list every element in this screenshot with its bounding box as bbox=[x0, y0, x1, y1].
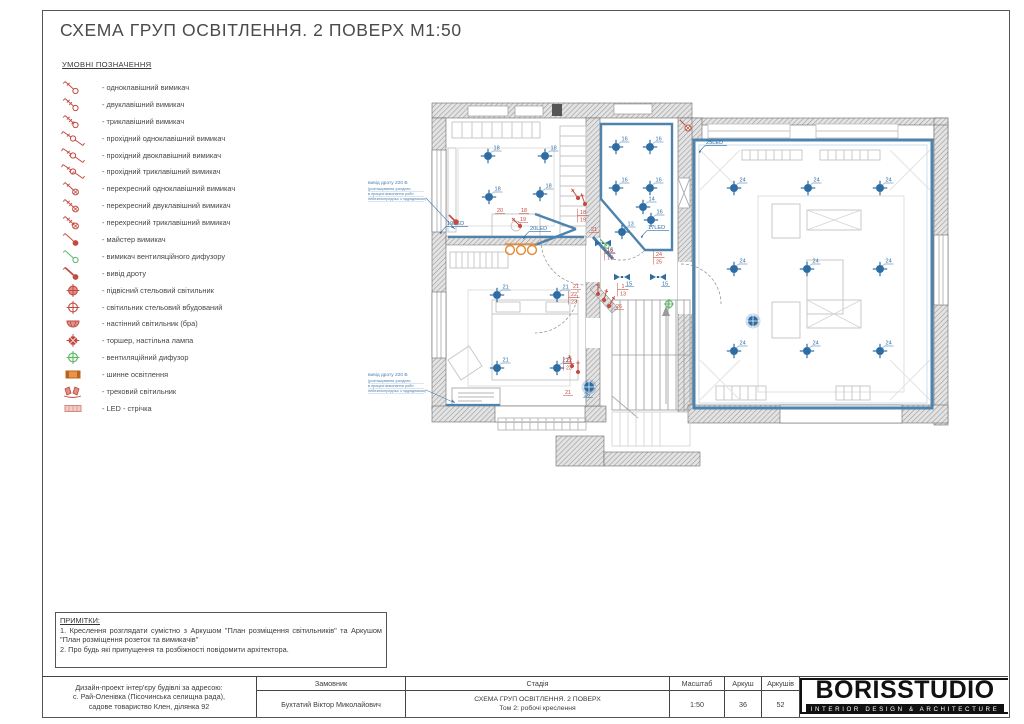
legend-item: - одноклавішний вимикач bbox=[58, 79, 358, 96]
svg-text:небезпосередньо з підрядником): небезпосередньо з підрядником) bbox=[368, 389, 427, 393]
legend-item: - вивід дроту bbox=[58, 265, 358, 282]
circuit-number-label: 20 bbox=[495, 208, 505, 214]
project-address: Дизайн-проект інтер'єру будівлі за адрес… bbox=[42, 677, 256, 717]
legend-item-label: - трековий світильник bbox=[88, 387, 176, 396]
ceiling-light: 18 bbox=[482, 187, 503, 205]
legend-item: - перехресний двуклавішний вимикач bbox=[58, 197, 358, 214]
svg-text:24: 24 bbox=[813, 341, 819, 347]
legend-item: - вентиляційний дифузор bbox=[58, 349, 358, 366]
svg-text:25LED: 25LED bbox=[706, 140, 723, 146]
stage-label: Стадія bbox=[406, 677, 669, 691]
svg-text:18: 18 bbox=[494, 146, 500, 152]
notes-box: ПРИМІТКИ: 1. Креслення розглядати суміст… bbox=[55, 612, 387, 668]
legend-item: - вимикач вентиляційного дифузору bbox=[58, 248, 358, 265]
svg-text:1: 1 bbox=[622, 284, 625, 290]
svg-text:18: 18 bbox=[546, 184, 552, 190]
svg-text:24: 24 bbox=[814, 178, 820, 184]
track-light-icon bbox=[58, 383, 88, 400]
cross-switch-2-icon bbox=[58, 197, 88, 214]
svg-text:24: 24 bbox=[656, 252, 662, 258]
legend-item: - підвісний стельовий світильник bbox=[58, 282, 358, 299]
svg-text:18: 18 bbox=[521, 208, 527, 214]
sheets-total-label: Аркушів bbox=[762, 677, 799, 691]
circuit-number-label: 21 bbox=[563, 390, 573, 396]
stage-value: СХЕМА ГРУП ОСВІТЛЕННЯ. 2 ПОВЕРХ Том 2: р… bbox=[406, 691, 669, 718]
svg-text:21: 21 bbox=[503, 358, 509, 364]
notes-lines: 1. Креслення розглядати сумістно з Аркуш… bbox=[60, 626, 382, 654]
scale-label: Масштаб bbox=[670, 677, 724, 691]
master-switch-icon bbox=[58, 231, 88, 248]
svg-text:25: 25 bbox=[656, 260, 662, 266]
legend-item: - прохідний триклавішний вимикач bbox=[58, 163, 358, 180]
svg-text:16: 16 bbox=[622, 137, 628, 143]
svg-text:15: 15 bbox=[662, 282, 668, 288]
pendant-light bbox=[746, 314, 761, 329]
svg-text:21: 21 bbox=[565, 390, 571, 396]
pass-switch-1-icon bbox=[58, 130, 88, 147]
circuit-number-label: 21 bbox=[571, 284, 581, 290]
svg-text:21: 21 bbox=[591, 227, 597, 233]
legend-item: - прохідний одноклавішний вимикач bbox=[58, 130, 358, 147]
legend-item-label: - триклавішний вимикач bbox=[88, 117, 184, 126]
svg-text:25: 25 bbox=[584, 392, 590, 398]
ceiling-light: 24 bbox=[873, 178, 894, 196]
legend-item: - перехресний триклавішний вимикач bbox=[58, 214, 358, 231]
legend-item-label: - одноклавішний вимикач bbox=[88, 83, 189, 92]
legend-item: - перехресний одноклавішний вимикач bbox=[58, 180, 358, 197]
legend: - одноклавішний вимикач - двуклавішний в… bbox=[58, 79, 358, 417]
legend-item: - шинне освітлення bbox=[58, 366, 358, 383]
legend-item: - прохідний двоклавішний вимикач bbox=[58, 147, 358, 164]
legend-item-label: - світильник стельовий вбудований bbox=[88, 303, 222, 312]
svg-text:18: 18 bbox=[551, 146, 557, 152]
logo-text: BORISSTUDIO bbox=[815, 678, 994, 703]
svg-text:13: 13 bbox=[628, 222, 634, 228]
pendant-light-icon bbox=[58, 282, 88, 299]
circuit-number-label: 26 bbox=[614, 304, 624, 310]
legend-item-label: - настінний світильник (бра) bbox=[88, 319, 198, 328]
notes-heading: ПРИМІТКИ: bbox=[60, 616, 382, 625]
sheet-number: 36 bbox=[725, 691, 761, 718]
vent-diffuser-icon bbox=[58, 349, 88, 366]
walls bbox=[432, 103, 948, 466]
legend-item: - триклавішний вимикач bbox=[58, 113, 358, 130]
circuit-group-label: 2425 bbox=[654, 251, 665, 266]
legend-item-label: - вентиляційний дифузор bbox=[88, 353, 188, 362]
svg-text:20: 20 bbox=[497, 208, 503, 214]
legend-item-label: - LED - стрічка bbox=[88, 404, 152, 413]
wall-light-icon bbox=[58, 315, 88, 332]
svg-text:16: 16 bbox=[656, 137, 662, 143]
legend-item-label: - прохідний триклавішний вимикач bbox=[88, 167, 220, 176]
ceiling-light: 21 bbox=[490, 358, 511, 376]
svg-text:16: 16 bbox=[656, 178, 662, 184]
legend-item-label: - перехресний одноклавішний вимикач bbox=[88, 184, 235, 193]
ceiling-light: 18 bbox=[533, 184, 554, 202]
svg-text:26: 26 bbox=[616, 304, 622, 310]
legend-item: - LED - стрічка bbox=[58, 400, 358, 417]
pass-switch-3-icon bbox=[58, 163, 88, 180]
circuit-number-label: 19 bbox=[518, 217, 528, 223]
legend-item-label: - прохідний двоклавішний вимикач bbox=[88, 151, 221, 160]
svg-text:21: 21 bbox=[563, 285, 569, 291]
svg-text:19: 19 bbox=[520, 217, 526, 223]
vent-switch-icon bbox=[58, 248, 88, 265]
circuit-number-label: 18 bbox=[519, 208, 529, 214]
recessed-light-icon bbox=[58, 299, 88, 316]
legend-item-label: - вимикач вентиляційного дифузору bbox=[88, 252, 225, 261]
ceiling-light: 24 bbox=[873, 259, 894, 277]
sheets-total-value: 52 bbox=[762, 691, 799, 718]
svg-text:22: 22 bbox=[571, 292, 577, 298]
svg-text:18: 18 bbox=[580, 210, 586, 216]
ceiling-light: 24 bbox=[727, 259, 748, 277]
scale-value: 1:50 bbox=[670, 691, 724, 718]
customer-name: Бухтатий Віктор Миколайович bbox=[257, 691, 405, 718]
legend-item: - двуклавішний вимикач bbox=[58, 96, 358, 113]
svg-text:17LED: 17LED bbox=[648, 225, 665, 231]
svg-text:14: 14 bbox=[649, 197, 655, 203]
legend-item-label: - шинне освітлення bbox=[88, 370, 168, 379]
legend-item-label: - двуклавішний вимикач bbox=[88, 100, 184, 109]
sheet-label: Аркуш bbox=[725, 677, 761, 691]
note-line: 2. Про будь які припущення та розбіжност… bbox=[60, 645, 382, 654]
ceiling-light: 24 bbox=[800, 259, 821, 277]
legend-item-label: - перехресний двуклавішний вимикач bbox=[88, 201, 231, 210]
legend-item: - настінний світильник (бра) bbox=[58, 315, 358, 332]
ceiling-light: 24 bbox=[727, 341, 748, 359]
legend-heading: УМОВНІ ПОЗНАЧЕННЯ bbox=[62, 60, 151, 69]
floor-lamp-icon bbox=[58, 332, 88, 349]
svg-text:23: 23 bbox=[571, 300, 577, 306]
svg-text:16: 16 bbox=[657, 210, 663, 216]
svg-text:21: 21 bbox=[503, 285, 509, 291]
cross-switch-1-icon bbox=[58, 180, 88, 197]
legend-item-label: - вивід дроту bbox=[88, 269, 146, 278]
svg-text:16: 16 bbox=[622, 178, 628, 184]
svg-text:небезпосередньо з підрядником): небезпосередньо з підрядником) bbox=[368, 197, 427, 201]
customer-label: Замовник bbox=[257, 677, 405, 691]
svg-text:вивід дроту 220 В: вивід дроту 220 В bbox=[368, 372, 408, 378]
svg-text:20LED: 20LED bbox=[530, 226, 547, 232]
legend-item: - трековий світильник bbox=[58, 383, 358, 400]
svg-text:24: 24 bbox=[740, 178, 746, 184]
legend-item: - торшер, настільна лампа bbox=[58, 332, 358, 349]
legend-item-label: - майстер вимикач bbox=[88, 235, 166, 244]
legend-item-label: - торшер, настільна лампа bbox=[88, 336, 193, 345]
ceiling-light: 24 bbox=[801, 178, 822, 196]
svg-text:19: 19 bbox=[580, 218, 586, 224]
svg-text:24: 24 bbox=[740, 341, 746, 347]
studio-logo: BORISSTUDIO INTERIOR DESIGN & ARCHITECTU… bbox=[800, 678, 1008, 714]
page-title: СХЕМА ГРУП ОСВІТЛЕННЯ. 2 ПОВЕРХ М1:50 bbox=[60, 20, 462, 41]
svg-text:16: 16 bbox=[607, 248, 613, 254]
ceiling-light: 24 bbox=[800, 341, 821, 359]
svg-text:24: 24 bbox=[813, 259, 819, 265]
note-line: 1. Креслення розглядати сумістно з Аркуш… bbox=[60, 626, 382, 645]
logo-tagline: INTERIOR DESIGN & ARCHITECTURE bbox=[806, 704, 1005, 714]
track-light: 15 bbox=[650, 274, 670, 288]
svg-text:13: 13 bbox=[620, 292, 626, 298]
svg-text:24: 24 bbox=[886, 178, 892, 184]
svg-text:(розташування узгодити: (розташування узгодити bbox=[368, 187, 411, 191]
bus-plan-mark bbox=[505, 244, 537, 254]
svg-text:вивід дроту 220 В: вивід дроту 220 В bbox=[368, 180, 408, 186]
svg-text:в процесі виконання робіт: в процесі виконання робіт bbox=[368, 384, 414, 388]
legend-item-label: - прохідний одноклавішний вимикач bbox=[88, 134, 225, 143]
svg-text:15: 15 bbox=[626, 282, 632, 288]
switch-2-icon bbox=[58, 96, 88, 113]
ceiling-light: 24 bbox=[873, 341, 894, 359]
title-block: Дизайн-проект інтер'єру будівлі за адрес… bbox=[42, 676, 1008, 717]
svg-text:18: 18 bbox=[495, 187, 501, 193]
svg-text:в процесі виконання робіт: в процесі виконання робіт bbox=[368, 192, 414, 196]
wire-outlet-icon bbox=[58, 265, 88, 282]
cross-switch-3-icon bbox=[58, 214, 88, 231]
led-strip-label: 25LED bbox=[699, 140, 727, 153]
svg-text:24: 24 bbox=[886, 259, 892, 265]
pass-switch-2-icon bbox=[58, 147, 88, 164]
svg-text:24: 24 bbox=[886, 341, 892, 347]
svg-text:24: 24 bbox=[740, 259, 746, 265]
sw-plan-mark bbox=[570, 189, 582, 201]
legend-item-label: - підвісний стельовий світильник bbox=[88, 286, 214, 295]
svg-text:(розташування узгодити: (розташування узгодити bbox=[368, 379, 411, 383]
sw-plan-mark bbox=[571, 361, 585, 375]
switch-3-icon bbox=[58, 113, 88, 130]
led-strip-icon bbox=[58, 400, 88, 417]
legend-item-label: - перехресний триклавішний вимикач bbox=[88, 218, 230, 227]
svg-text:21: 21 bbox=[573, 284, 579, 290]
svg-text:17: 17 bbox=[607, 256, 613, 262]
floor-plan: 1818181816161616161413212121212424242424… bbox=[360, 95, 960, 475]
switch-1-icon bbox=[58, 79, 88, 96]
legend-item: - світильник стельовий вбудований bbox=[58, 299, 358, 316]
bus-light-icon bbox=[58, 366, 88, 383]
legend-item: - майстер вимикач bbox=[58, 231, 358, 248]
